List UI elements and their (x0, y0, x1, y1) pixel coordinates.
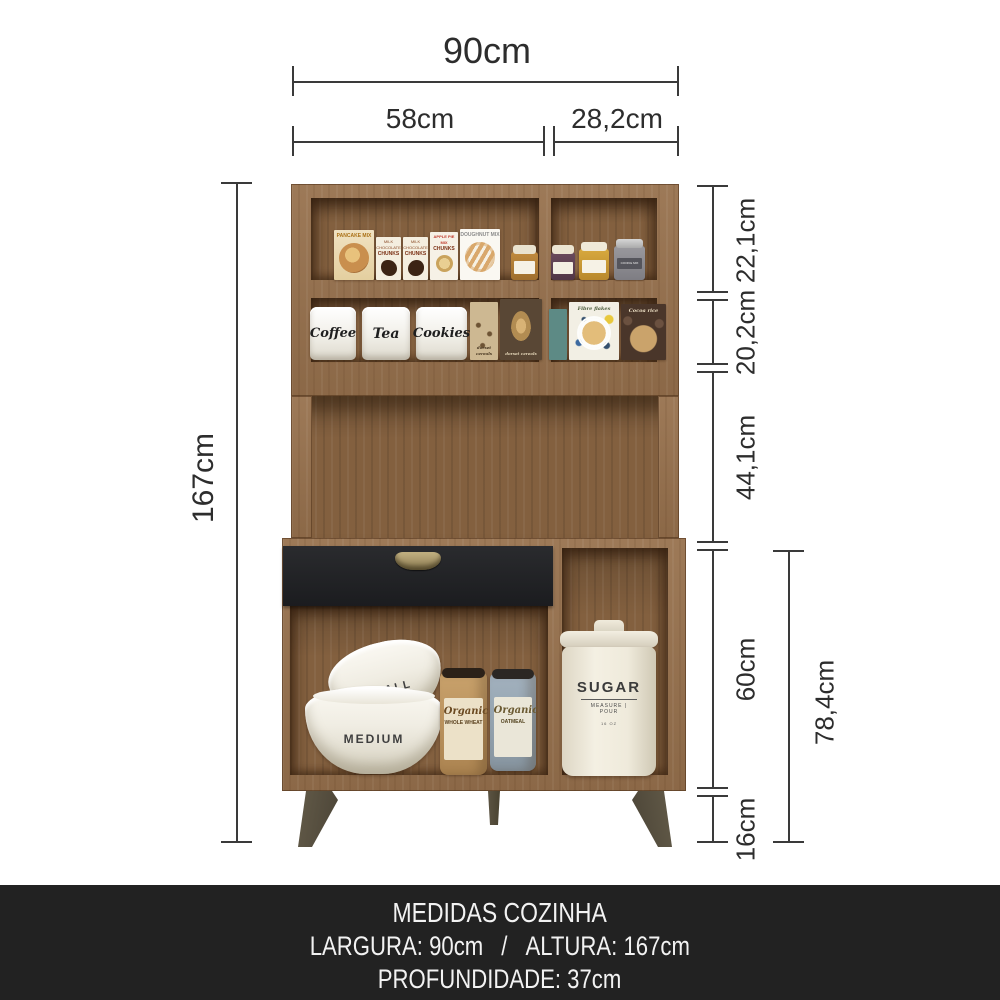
dim-base-total-label: 78,4cm (810, 643, 841, 763)
chunks-box-subtitle: MILK CHOCOLATE (403, 239, 428, 251)
tea-tin-label: Tea (373, 326, 400, 342)
cookie-mix-jar-label: COOKIE MIX (617, 258, 642, 269)
dim-right-width-label: 28,2cm (557, 103, 677, 135)
front-right-leg (630, 791, 680, 847)
apple-pie-mix-label: APPLE PIE MIX (430, 234, 458, 246)
measurements-banner: MEDIDAS COZINHA LARGURA: 90cm/ALTURA: 16… (0, 885, 1000, 1000)
cereal-box-dark: dorset cereals (500, 299, 542, 360)
dim-total-height-label: 167cm (187, 418, 221, 538)
dim-mid-shelf-label: 20,2cm (731, 273, 762, 393)
doughnut-illustration (465, 242, 495, 272)
cookies-tin-label: Cookies (413, 326, 470, 341)
dim-tick (697, 299, 728, 301)
dim-tick (221, 182, 252, 184)
dim-seg-line (712, 796, 714, 842)
jam-jar (551, 252, 575, 280)
cocoa-rice-box: Cocoa rice (621, 304, 666, 360)
dim-total-width-line (293, 81, 679, 83)
middle-leg (487, 791, 501, 825)
coffee-tin: Coffee (310, 307, 356, 360)
drawer-handle (395, 552, 441, 570)
teal-box (549, 309, 567, 360)
dim-right-width-line (554, 141, 679, 143)
dim-seg-line (712, 550, 714, 788)
fibre-flakes-box: Fibre flakes (569, 302, 619, 360)
banner-width-height-line: LARGURA: 90cm/ALTURA: 167cm (0, 931, 1000, 962)
dim-tick (697, 363, 728, 365)
dim-tick (773, 550, 804, 552)
dim-tick (697, 291, 728, 293)
open-section-back-panel (291, 396, 679, 538)
dim-tick (292, 126, 294, 156)
pancake-mix-box: PANCAKE MIX (334, 230, 374, 280)
dim-tick (697, 549, 728, 551)
dim-total-width-label: 90cm (427, 30, 547, 72)
apple-pie-mix-box: APPLE PIE MIX CHUNKS (430, 232, 458, 280)
coffee-tin-label: Coffee (310, 326, 356, 341)
dim-open-section-label: 44,1cm (731, 398, 762, 518)
chocolate-chunks-box: MILK CHOCOLATE CHUNKS (376, 237, 401, 280)
tea-tin: Tea (362, 307, 410, 360)
organic-script: Organic (494, 705, 533, 716)
sugar-label: SUGAR (562, 679, 656, 696)
dim-left-width-line (293, 141, 544, 143)
dim-tick (677, 66, 679, 96)
dim-tick (553, 126, 555, 156)
muesli-box-label: dorset cereals (470, 345, 498, 357)
jar-label (553, 262, 573, 274)
cookie-illustration (436, 255, 453, 272)
dim-tick (221, 841, 252, 843)
dim-tick (292, 66, 294, 96)
open-section-right-panel (658, 396, 679, 538)
dim-seg-line (712, 186, 714, 292)
chunks-box-title: CHUNKS (403, 251, 428, 257)
whole-wheat-canister: Organic WHOLE WHEAT (440, 672, 487, 775)
jar-lid (581, 242, 607, 251)
banner-altura: ALTURA: 167cm (526, 931, 690, 961)
doughnut-mix-label: DOUGHNUT MIX (460, 232, 500, 238)
bowl-rim (313, 688, 434, 704)
chocolate-chunks-illustration (408, 260, 424, 276)
cookie-mix-jar: COOKIE MIX (614, 246, 645, 280)
banner-title-line: MEDIDAS COZINHA (0, 897, 1000, 929)
dim-left-width-label: 58cm (360, 103, 480, 135)
dim-seg-line (712, 372, 714, 542)
pancake-illustration (339, 243, 369, 273)
dim-tick (773, 841, 804, 843)
jar-lid (513, 245, 537, 254)
chunks-box-subtitle: MILK CHOCOLATE (376, 239, 401, 251)
product-dimension-diagram: 90cm 58cm 28,2cm 167cm 22,1cm 20,2cm 44,… (0, 0, 1000, 1000)
sugar-canister: SUGAR MEASURE | POUR 16 OZ (560, 620, 658, 776)
banner-largura: LARGURA: 90cm (310, 931, 483, 961)
cereal-box-label: dorset cereals (500, 351, 542, 357)
dim-base-label: 60cm (731, 610, 762, 730)
chocolate-chunks-illustration (381, 260, 397, 276)
sugar-lid (560, 631, 658, 648)
dim-tick (697, 541, 728, 543)
peanut-butter-jar (579, 249, 609, 280)
dim-tick (697, 185, 728, 187)
doughnut-mix-box: DOUGHNUT MIX (460, 229, 500, 280)
flakes-bowl-illustration (579, 318, 609, 348)
oat-sprig-illustration (511, 311, 531, 341)
jar-label (582, 260, 606, 273)
sugar-sublabel: MEASURE | POUR (581, 699, 637, 715)
banner-separator: / (501, 931, 507, 961)
dim-tick (677, 126, 679, 156)
dim-tick (697, 787, 728, 789)
banner-depth-line: PROFUNDIDADE: 37cm (0, 964, 1000, 995)
sugar-oz-label: 16 OZ (562, 721, 656, 726)
oatmeal-text: OATMEAL (494, 719, 533, 725)
dim-tick (697, 371, 728, 373)
organic-script: Organic (444, 706, 483, 717)
sugar-body: SUGAR MEASURE | POUR 16 OZ (562, 647, 656, 776)
chocolate-chunks-box: MILK CHOCOLATE CHUNKS (403, 237, 428, 280)
whole-wheat-text: WHOLE WHEAT (444, 720, 483, 726)
cocoa-rice-label: Cocoa rice (621, 308, 666, 314)
jar-lid (616, 239, 643, 248)
oatmeal-label: Organic OATMEAL (494, 697, 533, 757)
canister-lid (492, 669, 534, 679)
dim-tick (697, 841, 728, 843)
dim-base-total-line (788, 551, 790, 842)
dim-total-height-line (236, 183, 238, 843)
drawer-front (283, 546, 553, 606)
chunks-box-title: CHUNKS (430, 246, 458, 252)
chunks-box-title: CHUNKS (376, 251, 401, 257)
cookies-tin: Cookies (416, 307, 467, 360)
whole-wheat-label: Organic WHOLE WHEAT (444, 698, 483, 760)
banner-width-height: LARGURA: 90cm/ALTURA: 167cm (310, 931, 690, 962)
dim-tick (697, 795, 728, 797)
canister-lid (442, 668, 485, 678)
dim-tick (543, 126, 545, 156)
oatmeal-canister: Organic OATMEAL (490, 673, 536, 771)
dim-seg-line (712, 300, 714, 364)
jar-lid (552, 245, 573, 254)
banner-title: MEDIDAS COZINHA (393, 897, 607, 929)
medium-bowl-label: MEDIUM (305, 732, 443, 746)
open-section-left-panel (291, 396, 312, 538)
jar-label (514, 261, 535, 274)
muesli-box: dorset cereals (470, 302, 498, 360)
pancake-mix-label: PANCAKE MIX (334, 233, 374, 239)
banner-profundidade: PROFUNDIDADE: 37cm (378, 964, 622, 995)
fibre-flakes-label: Fibre flakes (569, 306, 619, 312)
front-left-leg (290, 791, 340, 847)
sauce-jar (511, 252, 538, 280)
dim-feet-label: 16cm (731, 770, 762, 890)
